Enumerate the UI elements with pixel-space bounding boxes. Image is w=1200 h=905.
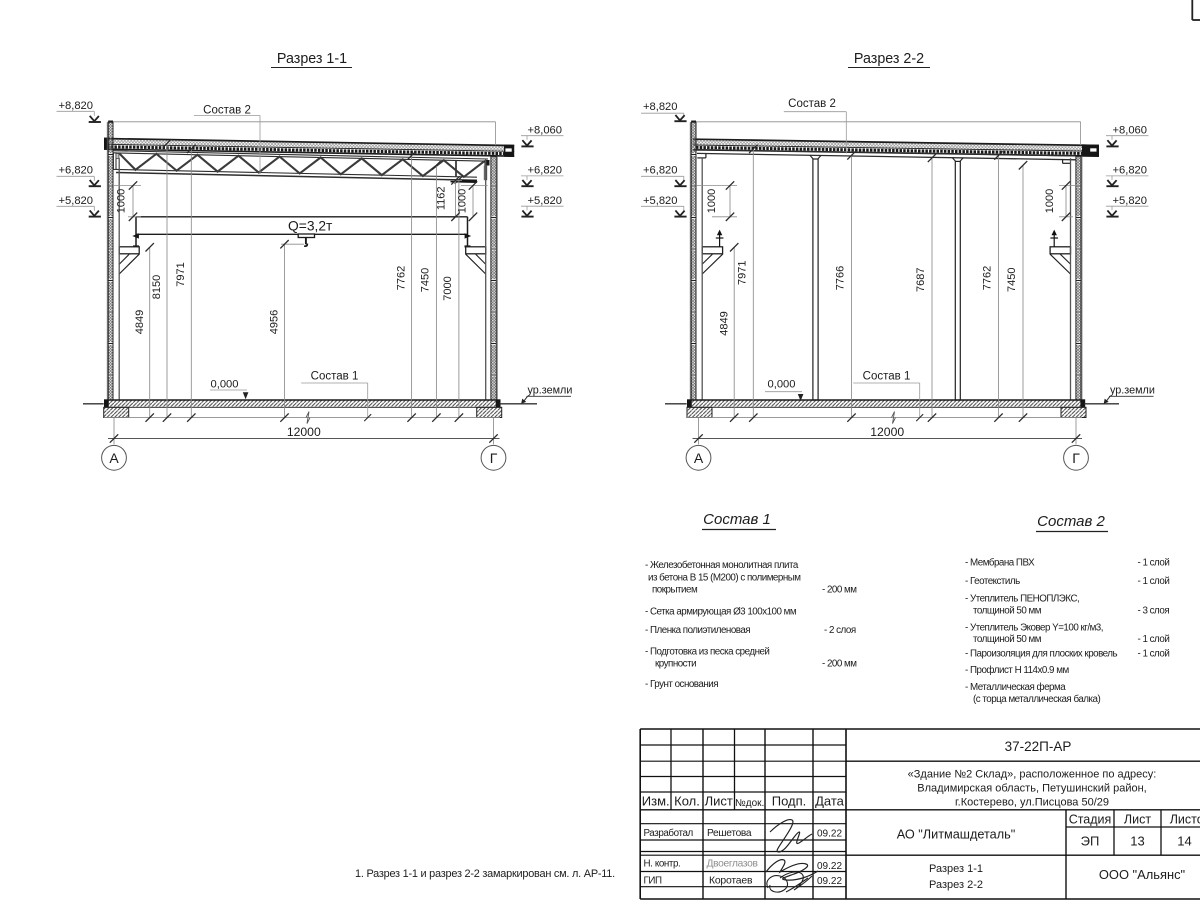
svg-text:ООО "Альянс": ООО "Альянс"	[1099, 867, 1186, 882]
svg-text:Состав 2: Состав 2	[1037, 513, 1105, 530]
svg-text:ЭП: ЭП	[1081, 834, 1100, 849]
svg-text:+6,820: +6,820	[58, 165, 93, 177]
svg-text:Лист: Лист	[1124, 812, 1151, 826]
svg-text:- Геотекстиль: - Геотекстиль	[965, 576, 1020, 587]
svg-text:А: А	[109, 450, 119, 466]
svg-text:1000: 1000	[1044, 189, 1056, 213]
svg-text:Двоеглазов: Двоеглазов	[707, 859, 758, 870]
svg-text:- 1 слой: - 1 слой	[1138, 557, 1170, 568]
svg-text:покрытием: покрытием	[652, 585, 698, 596]
svg-text:из бетона В 15 (М200) с полиме: из бетона В 15 (М200) с полимерным	[648, 573, 801, 584]
svg-text:- Металлическая ферма: - Металлическая ферма	[965, 682, 1066, 693]
svg-text:1. Разрез 1-1 и разрез 2-2 зам: 1. Разрез 1-1 и разрез 2-2 замаркирован …	[355, 868, 615, 880]
svg-text:Листов: Листов	[1170, 812, 1200, 826]
svg-text:7971: 7971	[737, 260, 749, 284]
svg-text:7971: 7971	[175, 262, 187, 286]
svg-text:7766: 7766	[835, 266, 847, 290]
svg-text:Разрез 2-2: Разрез 2-2	[854, 51, 924, 67]
svg-text:4956: 4956	[269, 310, 281, 334]
svg-text:1162: 1162	[436, 186, 448, 210]
svg-text:ур.земли: ур.земли	[528, 384, 573, 396]
svg-text:№док.: №док.	[735, 798, 764, 809]
svg-text:ГИП: ГИП	[644, 875, 663, 886]
svg-text:Коротаев: Коротаев	[709, 876, 753, 887]
svg-text:Подп.: Подп.	[772, 793, 807, 808]
svg-text:7762: 7762	[396, 266, 408, 290]
svg-text:- Утеплитель Эковер Y=100 кг/м: - Утеплитель Эковер Y=100 кг/м3,	[965, 623, 1103, 634]
svg-text:+8,820: +8,820	[643, 101, 678, 113]
svg-text:+8,820: +8,820	[58, 100, 93, 112]
svg-text:- 200 мм: - 200 мм	[822, 659, 857, 670]
svg-text:12000: 12000	[870, 425, 904, 439]
svg-text:- 1 слой: - 1 слой	[1138, 649, 1170, 660]
svg-text:- Пленка полиэтиленовая: - Пленка полиэтиленовая	[645, 625, 750, 636]
svg-text:(с торца металлическая балка): (с торца металлическая балка)	[973, 694, 1100, 705]
svg-text:- 200 мм: - 200 мм	[822, 585, 857, 596]
svg-text:- 1 слой: - 1 слой	[1138, 576, 1170, 587]
svg-text:Кол.: Кол.	[674, 793, 700, 808]
svg-text:Состав 2: Состав 2	[788, 98, 836, 110]
svg-text:- Мембрана ПВХ: - Мембрана ПВХ	[965, 557, 1035, 568]
svg-text:- Железобетонная монолитная п: - Железобетонная монолитная плита	[645, 560, 799, 571]
svg-text:12000: 12000	[287, 425, 321, 439]
svg-text:+6,820: +6,820	[1112, 165, 1147, 177]
svg-text:37-22П-АР: 37-22П-АР	[1005, 739, 1072, 754]
svg-text:- Подготовка из песка средней: - Подготовка из песка средней	[645, 647, 769, 658]
svg-text:Изм.: Изм.	[642, 793, 670, 808]
svg-text:Разработал: Разработал	[644, 828, 694, 839]
svg-text:7450: 7450	[420, 268, 432, 292]
svg-text:0,000: 0,000	[211, 378, 239, 390]
svg-text:Лист: Лист	[705, 793, 733, 808]
svg-text:7687: 7687	[915, 267, 927, 291]
svg-text:Разрез 1-1: Разрез 1-1	[277, 51, 347, 67]
svg-text:Владимирская область, Петушинс: Владимирская область, Петушинский район,	[917, 783, 1146, 795]
svg-text:- Утеплитель ПЕНОПЛЭКС,: - Утеплитель ПЕНОПЛЭКС,	[965, 594, 1079, 605]
svg-text:А: А	[694, 450, 704, 466]
svg-text:+6,820: +6,820	[527, 165, 562, 177]
svg-text:- 3 слоя: - 3 слоя	[1138, 606, 1170, 617]
svg-text:- Профлист Н 114х0.9 мм: - Профлист Н 114х0.9 мм	[965, 665, 1069, 676]
svg-text:толщиной 50 мм: толщиной 50 мм	[973, 634, 1042, 645]
svg-text:+6,820: +6,820	[643, 165, 678, 177]
svg-text:АО "Литмашдеталь": АО "Литмашдеталь"	[897, 828, 1016, 842]
svg-text:Разрез 1-1: Разрез 1-1	[929, 863, 983, 875]
svg-text:+5,820: +5,820	[1112, 195, 1147, 207]
svg-text:+5,820: +5,820	[58, 195, 93, 207]
svg-text:4849: 4849	[134, 310, 146, 334]
svg-text:8150: 8150	[151, 275, 163, 299]
svg-text:Разрез 2-2: Разрез 2-2	[929, 879, 983, 891]
svg-text:Дата: Дата	[815, 793, 845, 808]
svg-text:+8,060: +8,060	[527, 125, 562, 137]
svg-text:7000: 7000	[442, 276, 454, 300]
svg-text:- 2 слоя: - 2 слоя	[824, 625, 856, 636]
svg-text:09.22: 09.22	[817, 861, 842, 872]
svg-text:Q=3,2т: Q=3,2т	[288, 219, 333, 234]
svg-text:Решетова: Решетова	[707, 828, 752, 839]
svg-text:0,000: 0,000	[768, 378, 796, 390]
svg-text:7450: 7450	[1006, 267, 1018, 291]
svg-text:1000: 1000	[116, 189, 128, 213]
svg-text:4849: 4849	[719, 311, 731, 335]
svg-text:«Здание №2 Склад», расположенн: «Здание №2 Склад», расположенное по адре…	[908, 769, 1157, 781]
svg-text:Н. контр.: Н. контр.	[644, 859, 681, 870]
svg-text:Состав 1: Состав 1	[311, 370, 359, 382]
svg-text:- 1 слой: - 1 слой	[1138, 634, 1170, 645]
svg-text:13: 13	[1130, 834, 1144, 849]
svg-text:Г: Г	[1072, 450, 1080, 466]
svg-text:Состав 2: Состав 2	[203, 105, 251, 117]
svg-text:Состав 1: Состав 1	[703, 511, 771, 528]
svg-text:1000: 1000	[706, 189, 718, 213]
svg-text:Г: Г	[490, 450, 498, 466]
svg-text:г.Костерево, ул.Писцова 50/29: г.Костерево, ул.Писцова 50/29	[955, 797, 1109, 809]
svg-text:Стадия: Стадия	[1069, 812, 1112, 826]
svg-text:+8,060: +8,060	[1112, 125, 1147, 137]
svg-text:- Пароизоляция для плоских кро: - Пароизоляция для плоских кровель	[965, 649, 1118, 660]
svg-text:09.22: 09.22	[817, 829, 842, 840]
svg-text:1000: 1000	[457, 189, 469, 213]
svg-text:крупности: крупности	[655, 659, 696, 670]
svg-text:7762: 7762	[982, 266, 994, 290]
svg-text:Состав 1: Состав 1	[863, 370, 911, 382]
svg-text:толщиной 50 мм: толщиной 50 мм	[973, 606, 1042, 617]
svg-text:+5,820: +5,820	[643, 195, 678, 207]
svg-text:+5,820: +5,820	[527, 195, 562, 207]
svg-text:- Сетка армирующая Ø3 100х100: - Сетка армирующая Ø3 100х100 мм	[645, 607, 797, 618]
svg-text:ур.земли: ур.земли	[1110, 384, 1155, 396]
svg-text:09.22: 09.22	[817, 876, 842, 887]
svg-text:- Грунт основания: - Грунт основания	[645, 679, 718, 690]
svg-text:14: 14	[1177, 834, 1191, 849]
